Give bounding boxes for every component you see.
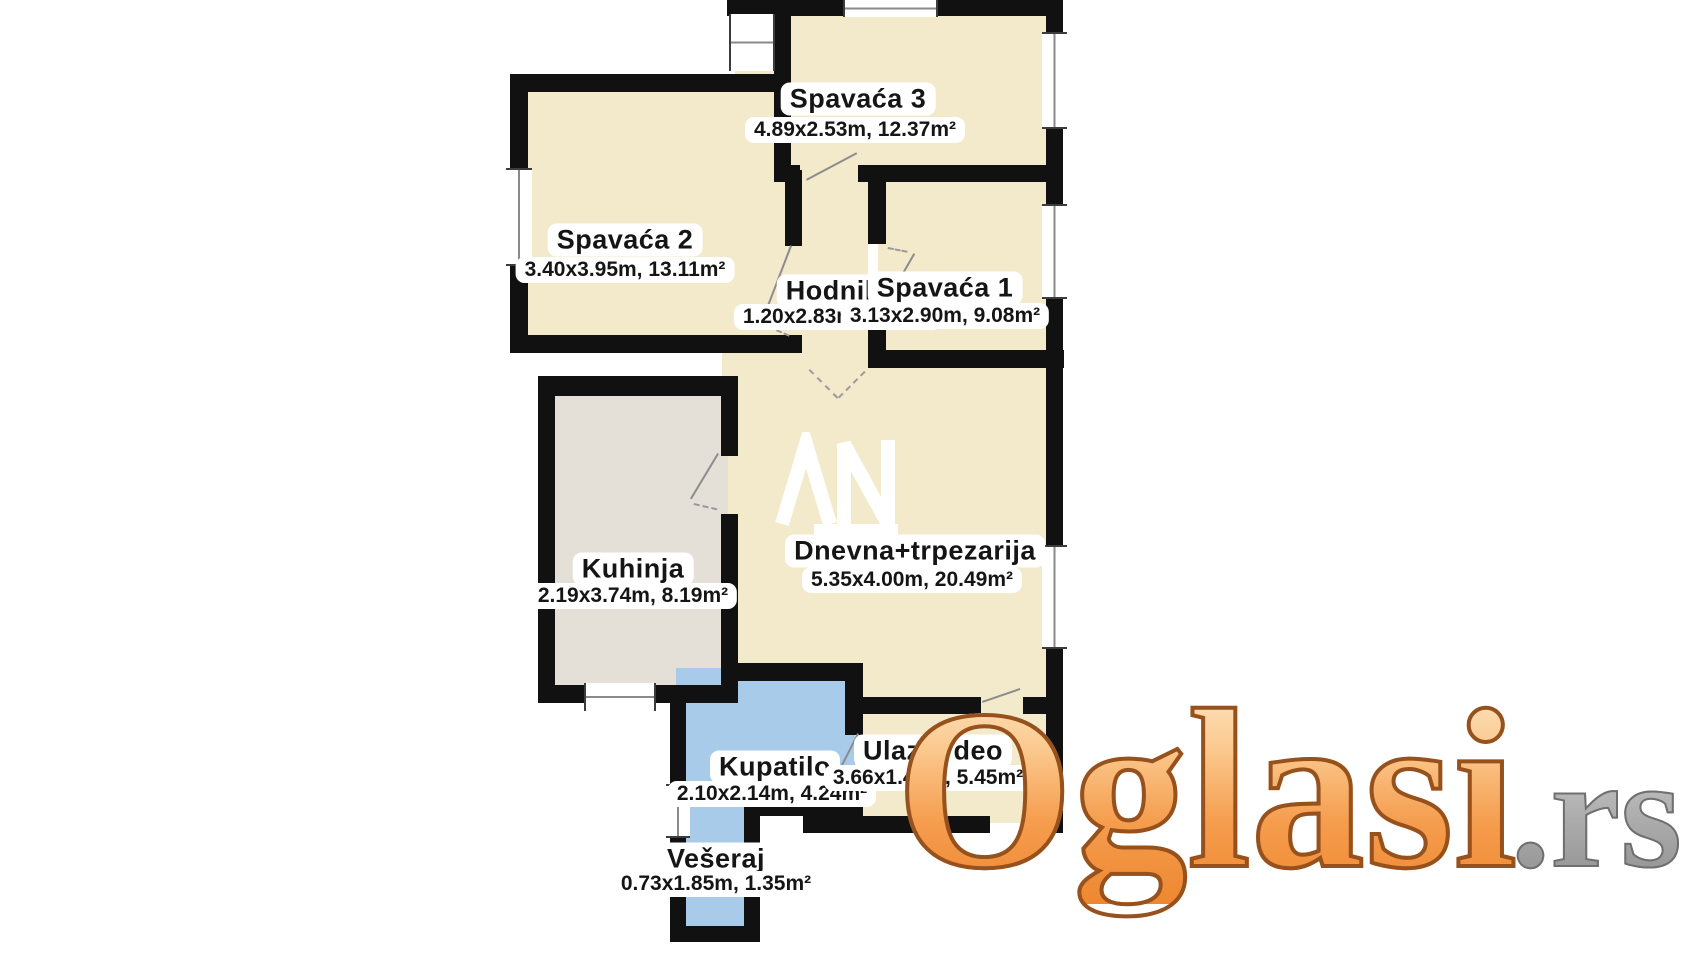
- wall-segment: [858, 165, 1063, 182]
- room-dims-spavaca2: 3.40x3.95m, 13.11m²: [516, 257, 735, 283]
- window: [843, 0, 938, 17]
- room-name-kuhinja: Kuhinja: [573, 553, 694, 586]
- an-watermark-icon: [768, 432, 908, 542]
- oglasi-logo-word: Oglasi: [896, 676, 1517, 904]
- room-dims-spavaca3: 4.89x2.53m, 12.37m²: [745, 117, 965, 143]
- oglasi-logo-tld: .rs: [1511, 735, 1682, 893]
- wall-segment: [868, 182, 886, 244]
- window: [1042, 32, 1067, 129]
- wall-segment: [510, 74, 791, 92]
- window: [729, 14, 775, 71]
- room-dims-dnevna: 5.35x4.00m, 20.49m²: [802, 567, 1022, 593]
- window: [1042, 204, 1067, 299]
- oglasi-rs-logo: Oglasi.rs: [896, 676, 1682, 904]
- wall-segment: [721, 376, 738, 456]
- wall-segment: [722, 663, 848, 681]
- wall-segment: [510, 335, 802, 353]
- room-dims-spavaca1: 3.13x2.90m, 9.08m²: [841, 303, 1049, 329]
- wall-segment: [538, 376, 738, 396]
- room-hodnik-floor: [791, 168, 868, 375]
- room-name-spavaca3: Spavaća 3: [781, 83, 936, 116]
- room-kuhinja-floor: [548, 390, 728, 692]
- wall-segment: [868, 350, 1064, 368]
- wall-segment: [538, 376, 555, 703]
- window: [1042, 545, 1067, 649]
- room-dims-kuhinja: 2.19x3.74m, 8.19m²: [529, 583, 737, 609]
- wall-segment: [670, 694, 686, 786]
- room-dims-veseraj: 0.73x1.85m, 1.35m²: [612, 871, 820, 897]
- room-name-dnevna: Dnevna+trpezarija: [785, 535, 1045, 568]
- floorplan-canvas: Spavaća 3 4.89x2.53m, 12.37m² Spavaća 2 …: [0, 0, 1683, 962]
- window: [506, 168, 532, 266]
- room-name-kupatilo: Kupatilo: [710, 751, 840, 784]
- room-name-spavaca2: Spavaća 2: [548, 224, 703, 257]
- window: [584, 683, 656, 711]
- room-name-spavaca1: Spavaća 1: [868, 272, 1023, 305]
- wall-segment: [774, 165, 800, 182]
